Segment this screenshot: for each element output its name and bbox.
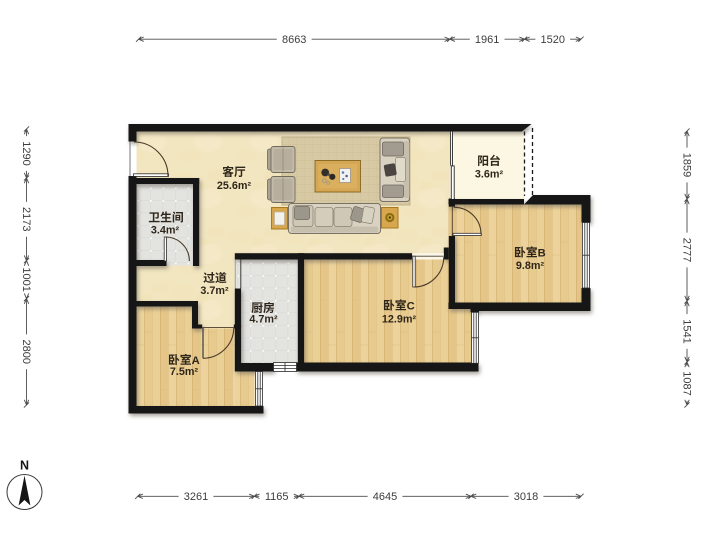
svg-text:1001: 1001 — [20, 267, 32, 291]
svg-text:1961: 1961 — [475, 34, 499, 46]
svg-text:B: B — [538, 248, 546, 260]
svg-text:1290: 1290 — [20, 141, 32, 165]
svg-text:N: N — [20, 459, 29, 473]
svg-text:2800: 2800 — [20, 340, 32, 364]
svg-text:1165: 1165 — [265, 491, 289, 503]
svg-text:3018: 3018 — [514, 491, 538, 503]
svg-text:7.5m²: 7.5m² — [170, 366, 199, 378]
svg-text:3.7m²: 3.7m² — [200, 285, 229, 297]
svg-text:3.4m²: 3.4m² — [151, 224, 180, 236]
svg-text:25.6m²: 25.6m² — [217, 180, 252, 192]
svg-text:8663: 8663 — [282, 34, 306, 46]
svg-text:9.8m²: 9.8m² — [516, 260, 545, 272]
svg-text:1520: 1520 — [541, 34, 565, 46]
svg-text:1859: 1859 — [680, 153, 692, 177]
svg-text:12.9m²: 12.9m² — [382, 314, 417, 326]
svg-text:C: C — [407, 301, 415, 313]
svg-text:3261: 3261 — [184, 491, 208, 503]
svg-text:4.7m²: 4.7m² — [249, 313, 278, 325]
svg-text:1541: 1541 — [680, 319, 692, 343]
svg-text:4645: 4645 — [373, 491, 397, 503]
svg-text:3.6m²: 3.6m² — [475, 168, 504, 180]
svg-text:1087: 1087 — [680, 371, 692, 395]
svg-text:2173: 2173 — [20, 207, 32, 231]
svg-text:2777: 2777 — [680, 238, 692, 262]
